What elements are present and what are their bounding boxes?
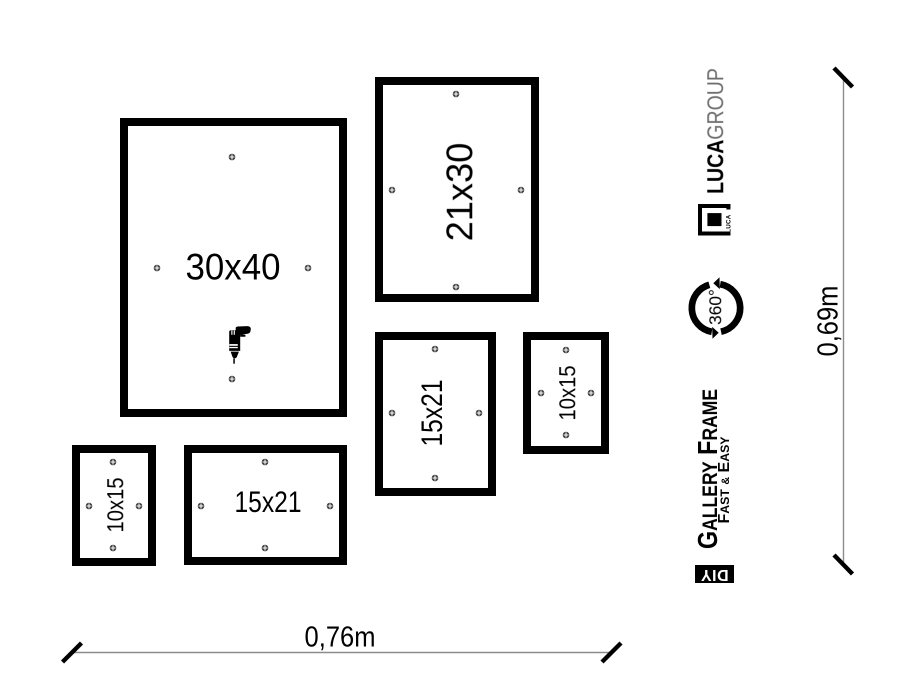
- svg-text:LUCA: LUCA: [725, 214, 731, 233]
